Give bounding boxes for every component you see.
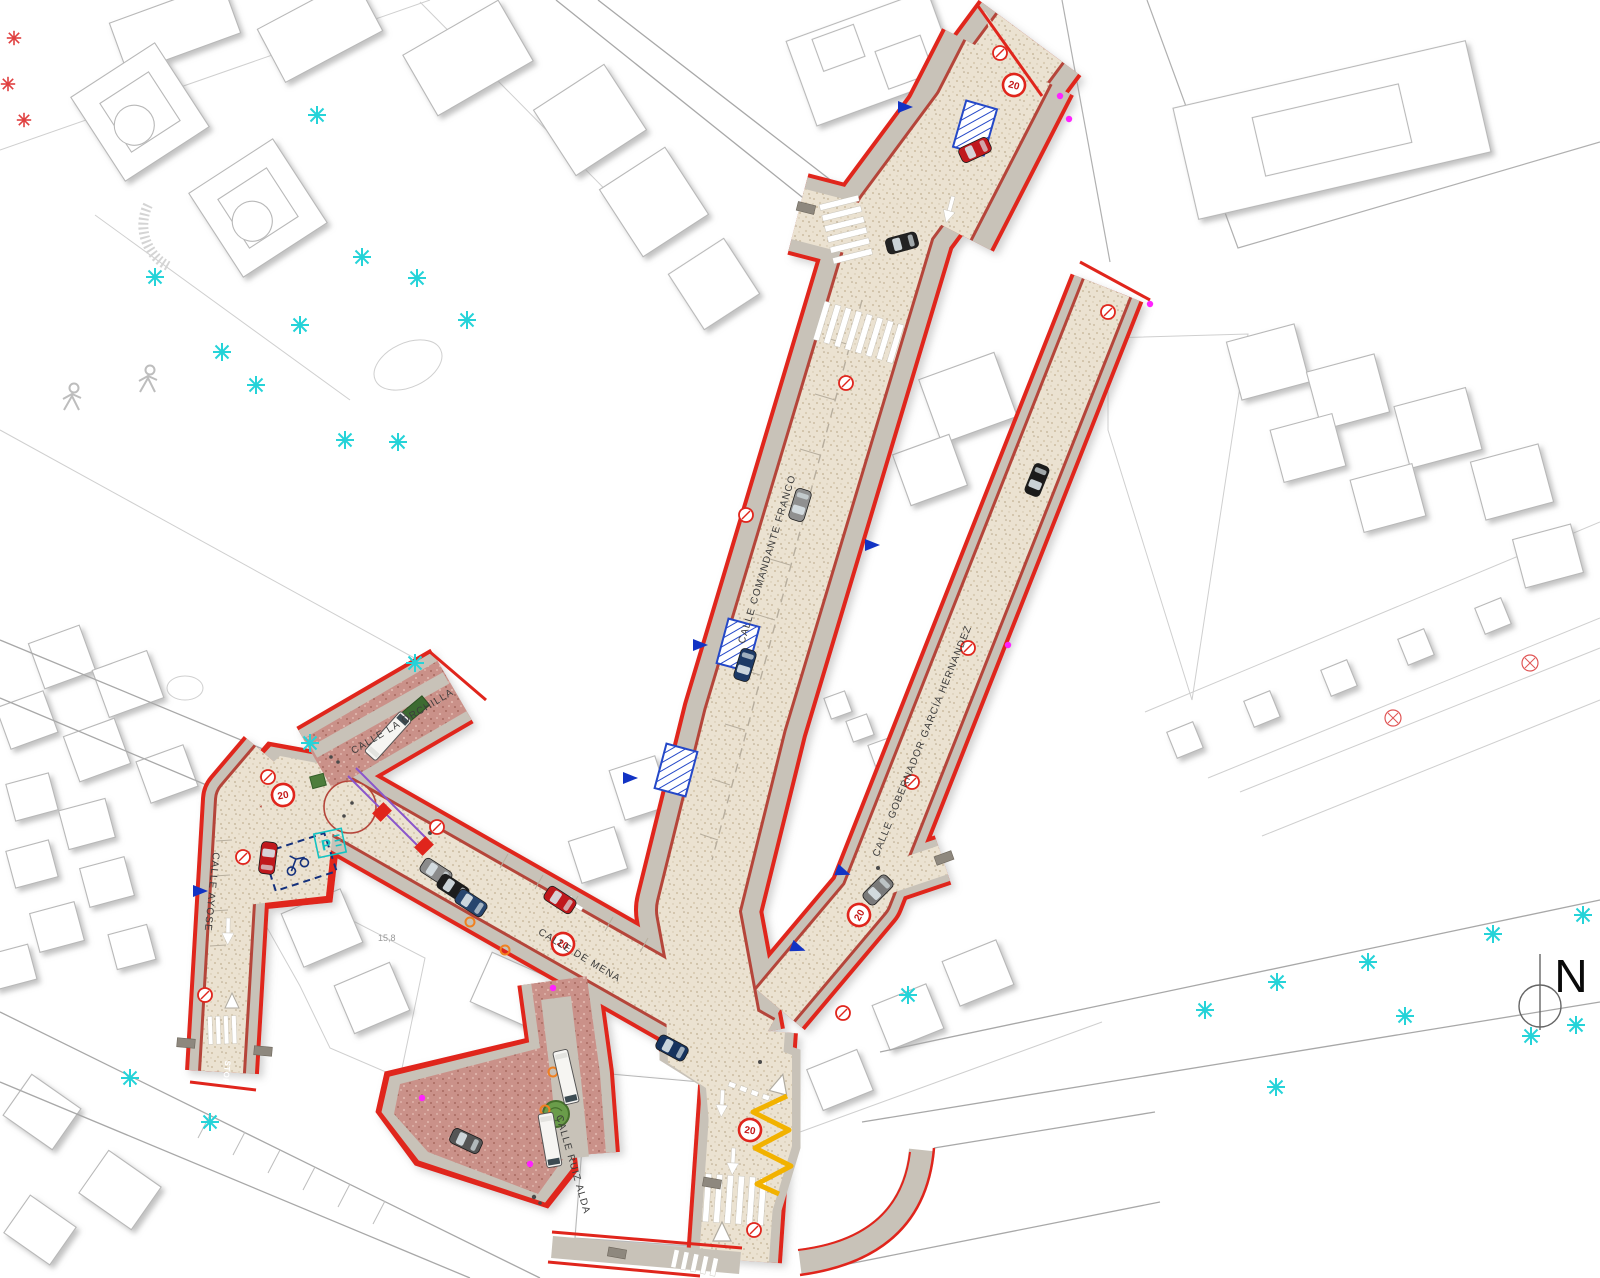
runner-figures [63,366,157,411]
tree-icon [406,654,424,672]
utility-marker [261,770,275,784]
tree-icon [1268,973,1286,991]
tree-icon [1567,1016,1585,1034]
north-label: N [1554,950,1587,1002]
survey-marker [1522,655,1538,671]
utility-marker [430,820,444,834]
tree-icon [291,316,309,334]
utility-marker [739,508,753,522]
utility-marker [747,1223,761,1237]
tree-icon [408,269,426,287]
utility-marker [1101,305,1115,319]
speed-limit-sign: 20 [738,1118,763,1143]
utility-marker [198,988,212,1002]
tree-icon [1484,925,1502,943]
tree-icon [213,343,231,361]
utility-marker [236,850,250,864]
red-trees [1,31,31,127]
north-arrow: N [1519,950,1588,1030]
tree-icon [1267,1078,1285,1096]
kerb-ramp [177,1038,196,1049]
utility-marker [836,1006,850,1020]
tree-icon [301,734,319,752]
measurement-label: 15,8 [378,933,396,943]
tree-icon [1396,1007,1414,1025]
tree-icon [336,431,354,449]
tree-icon [1359,953,1377,971]
survey-marker [1385,710,1401,726]
tree-icon [389,433,407,451]
tree-icon [7,31,21,45]
kerb-ramp [254,1046,273,1057]
tree-icon [1196,1001,1214,1019]
tree-icon [201,1113,219,1131]
utility-marker [993,46,1007,60]
tree-icon [1522,1027,1540,1045]
site-plan-map: P 20 20 20 20 20 [0,0,1600,1278]
tree-icon [353,248,371,266]
utility-marker [839,376,853,390]
tree-icon [146,268,164,286]
tree-icon [1,77,15,91]
tree-icon [17,113,31,127]
car [258,841,278,875]
tree-icon [458,311,476,329]
svg-text:20: 20 [744,1125,757,1138]
tree-icon [1574,906,1592,924]
tree-icon [247,376,265,394]
tree-icon [308,106,326,124]
boundary-triangle [865,539,880,551]
tree-icon [121,1069,139,1087]
tree-icon [899,986,917,1004]
